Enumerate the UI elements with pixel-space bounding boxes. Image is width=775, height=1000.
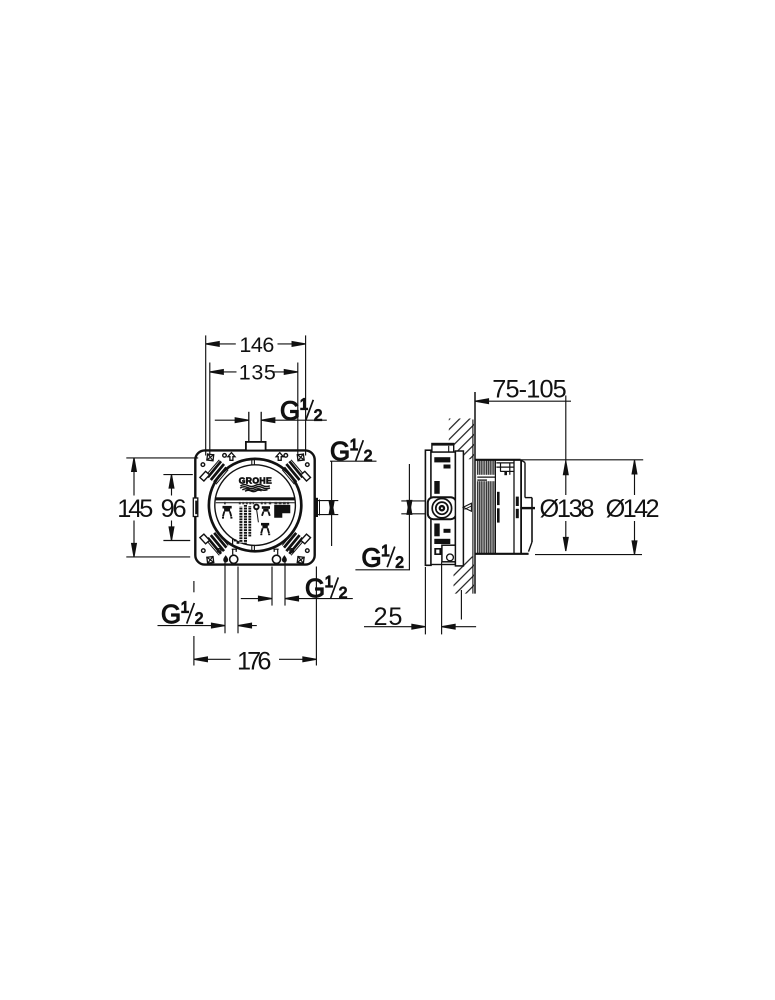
svg-text:Ø138: Ø138 [540,495,595,523]
svg-text:135: 135 [239,361,276,385]
svg-text:75-105: 75-105 [492,375,567,403]
svg-text:Ø142: Ø142 [606,495,660,523]
svg-text:176: 176 [237,647,272,675]
svg-text:GROHE: GROHE [239,475,272,485]
svg-text:96: 96 [161,495,187,523]
svg-text:146: 146 [239,333,274,357]
svg-text:25: 25 [374,603,403,631]
svg-text:145: 145 [117,495,153,523]
